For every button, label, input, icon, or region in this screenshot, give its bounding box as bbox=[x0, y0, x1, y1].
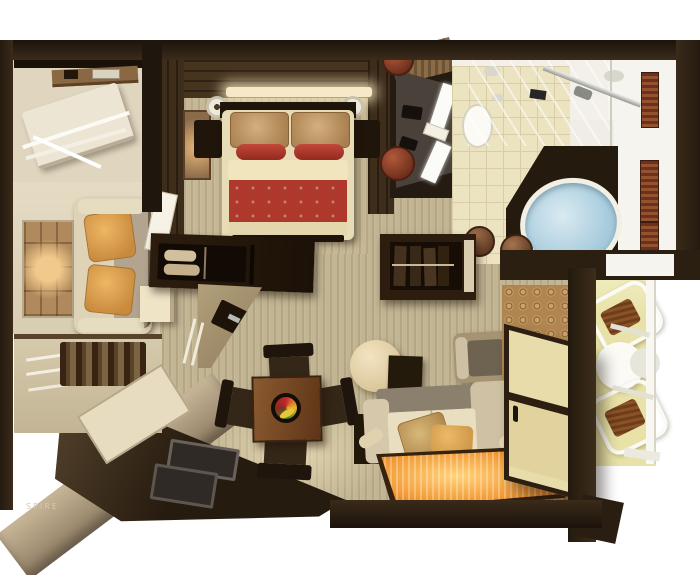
rolled-towel bbox=[164, 264, 200, 276]
cube-side-table bbox=[140, 286, 174, 322]
wardrobe bbox=[380, 234, 476, 300]
bed-pillow-red bbox=[236, 144, 286, 160]
bed-pillow-tan bbox=[291, 112, 350, 148]
wall-left bbox=[0, 40, 13, 510]
bed-foot-linen bbox=[229, 222, 347, 235]
armchair-seat bbox=[467, 339, 505, 377]
hanging-clothes bbox=[438, 246, 449, 286]
orange-pillow bbox=[83, 209, 137, 263]
shelf-items bbox=[92, 69, 120, 79]
balcony-railing bbox=[646, 278, 656, 464]
hanging-clothes bbox=[410, 246, 421, 286]
towel-rack bbox=[640, 160, 659, 222]
shelf-items bbox=[64, 70, 78, 79]
rolled-towel bbox=[164, 250, 196, 262]
bed-pillow-red bbox=[294, 144, 344, 160]
stone-artwork bbox=[22, 220, 74, 318]
bed-runner-red bbox=[229, 180, 347, 222]
vanity-stool bbox=[380, 146, 415, 181]
towel-rack bbox=[641, 72, 659, 128]
wall-top bbox=[8, 40, 692, 60]
wall-bottom bbox=[330, 500, 602, 528]
watermark-text: SPIRE bbox=[26, 502, 59, 511]
armchair-arm bbox=[455, 337, 469, 380]
bottle-rack bbox=[60, 342, 146, 386]
balcony-door-opening bbox=[606, 254, 674, 276]
wall-right bbox=[676, 40, 700, 272]
wardrobe-rod bbox=[392, 264, 454, 266]
sofa-armrest bbox=[78, 199, 144, 214]
wardrobe-side-panel bbox=[464, 240, 474, 292]
chair-back bbox=[257, 463, 312, 481]
lounger-slats bbox=[604, 398, 647, 438]
nightstand bbox=[352, 120, 380, 158]
dining-table bbox=[251, 375, 322, 442]
bed-sheet-fold bbox=[228, 160, 348, 180]
hanging-clothes bbox=[393, 246, 406, 286]
door-handle bbox=[513, 405, 518, 422]
cabinet-divider bbox=[249, 245, 254, 285]
floorplan-render: SPIRE bbox=[0, 0, 700, 575]
sofa-armrest bbox=[78, 318, 144, 332]
fruit-platter bbox=[271, 393, 302, 424]
hanging-clothes bbox=[423, 248, 436, 286]
wall-closet-divider bbox=[142, 40, 162, 212]
bed-pillow-tan bbox=[230, 112, 289, 148]
nightstand bbox=[194, 120, 222, 158]
media-cabinet bbox=[149, 233, 315, 293]
shower-glass-panel bbox=[468, 54, 612, 146]
orange-pillow bbox=[84, 264, 137, 317]
telephone bbox=[401, 105, 423, 121]
